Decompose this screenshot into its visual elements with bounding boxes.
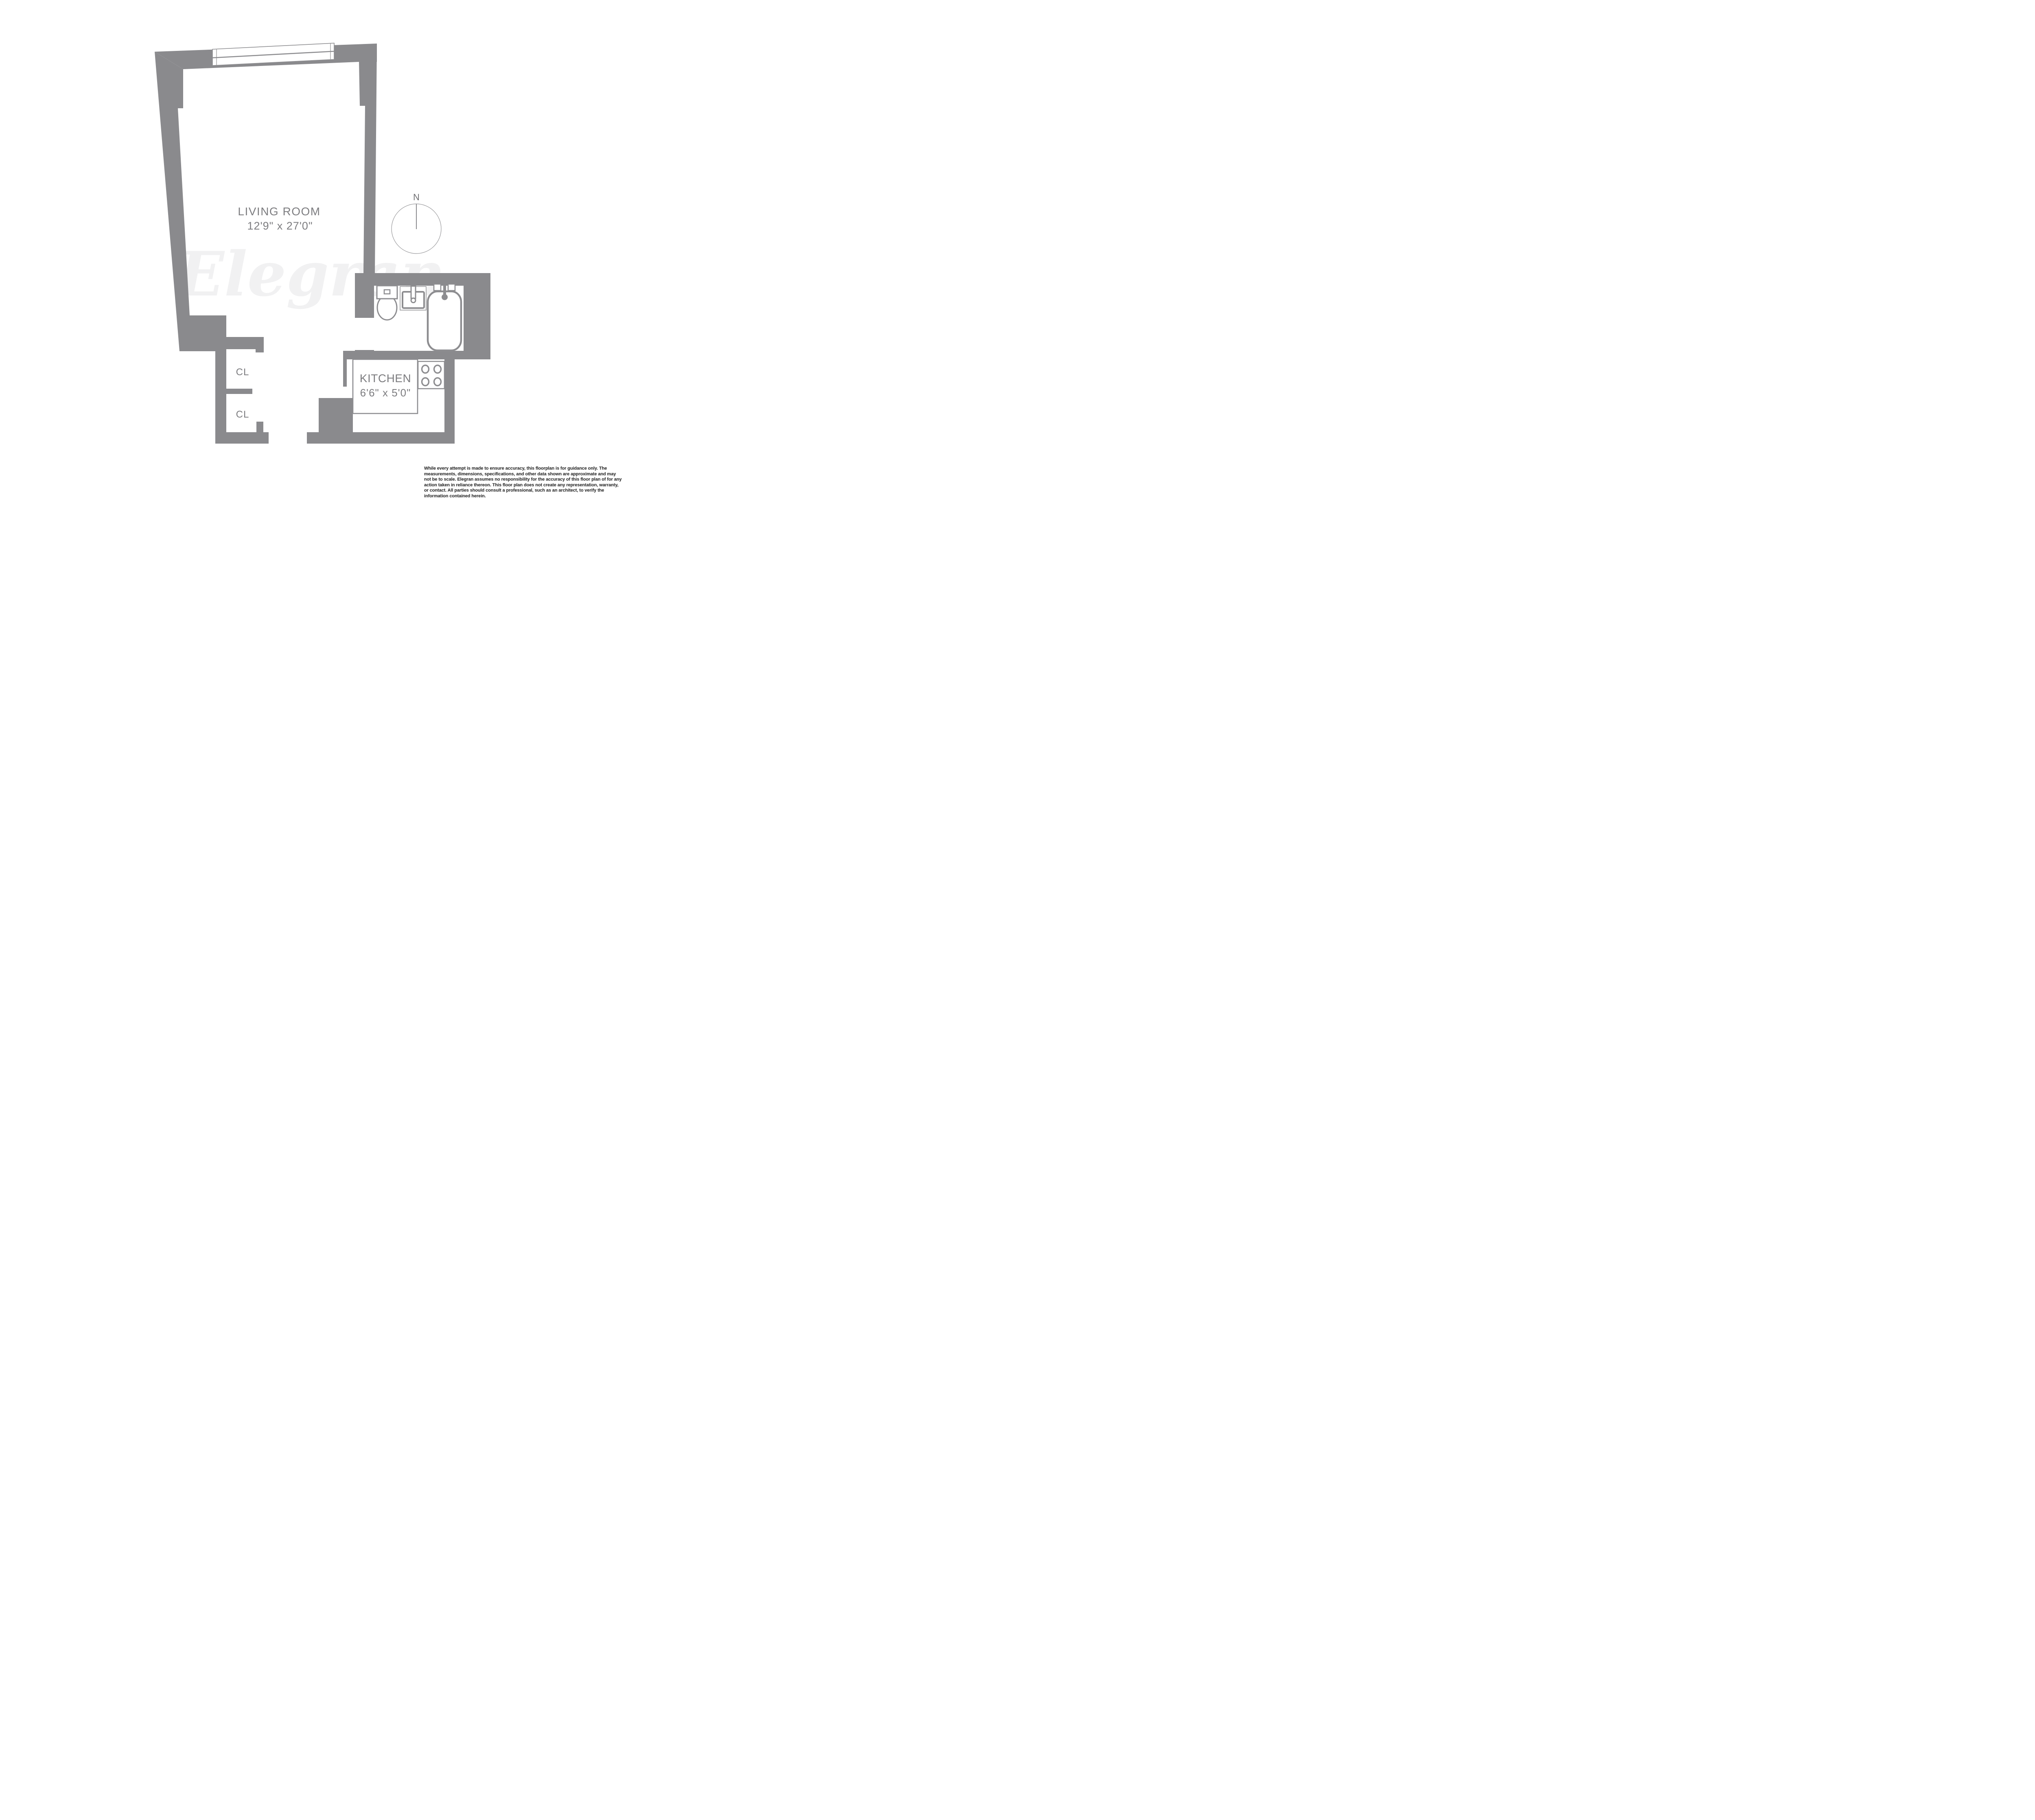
floorplan-drawing: Elegran — [0, 0, 629, 503]
living-room-dims: 12'9" x 27'0" — [247, 220, 313, 232]
wall-closet-left — [215, 315, 226, 432]
floorplan-page: Elegran — [0, 0, 629, 503]
wall-bottom-right — [307, 432, 455, 444]
wall-closet-stub — [256, 422, 263, 432]
kitchen-dims: 6'6" x 5'0" — [360, 387, 411, 399]
kitchen-label: KITCHEN — [360, 372, 411, 385]
stove-icon — [418, 361, 444, 389]
wall-bathroom-bottom — [343, 351, 490, 359]
disclaimer-text: While every attempt is made to ensure ac… — [424, 466, 622, 499]
wall-kitchen-block — [319, 398, 353, 432]
wall-kitchen-thin — [343, 351, 347, 387]
bathtub-icon — [428, 284, 461, 350]
wall-closet-divider — [226, 389, 252, 394]
compass: N — [392, 192, 441, 254]
wall-bathroom-right — [464, 273, 490, 359]
closet-lower-label: CL — [236, 409, 249, 420]
wall-bottom-left — [215, 432, 269, 444]
compass-north-label: N — [413, 192, 420, 202]
toilet-icon — [377, 286, 397, 320]
living-room-label: LIVING ROOM — [238, 205, 320, 218]
sink-icon — [400, 286, 426, 310]
wall-closet-top — [226, 337, 264, 352]
wall-kitchen-right — [444, 359, 455, 444]
closet-upper-label: CL — [236, 367, 249, 378]
